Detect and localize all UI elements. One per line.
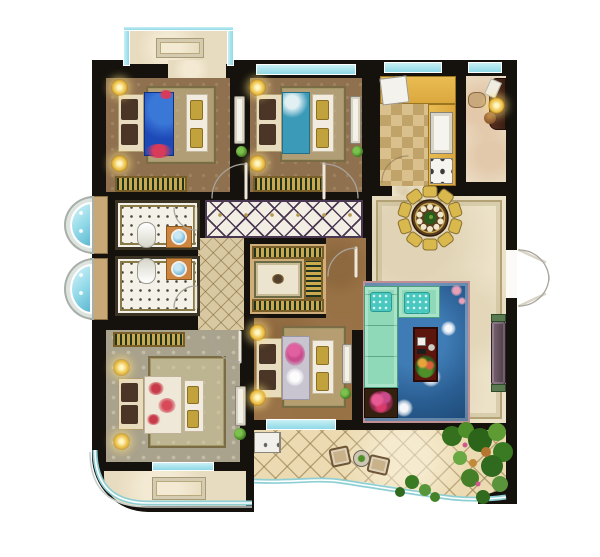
- bed4-bench-cushion: [316, 346, 329, 365]
- tv-console-cap: [491, 384, 506, 392]
- sink-basin: [171, 261, 187, 277]
- wall-lamp: [249, 389, 266, 406]
- rug-flower: [441, 321, 456, 336]
- bedroom4-dresser: [342, 344, 352, 384]
- washing-machine: [254, 432, 281, 453]
- bedroom4-window: [266, 419, 336, 430]
- bedroom2-window: [256, 64, 356, 75]
- fridge: [379, 75, 409, 105]
- bed3-pillow: [121, 383, 138, 402]
- toilet: [137, 222, 156, 248]
- bed2-bench-cushion: [316, 128, 329, 148]
- balcony-top-mat: [156, 38, 204, 58]
- entry-door-arc: [519, 276, 549, 306]
- bedroom3-wardrobe: [113, 332, 185, 347]
- bed1-flowers: [146, 144, 172, 158]
- balcony3-window: [152, 462, 214, 471]
- bed1-pillow: [121, 124, 138, 145]
- tv-console: [491, 321, 506, 385]
- entry-door-arc: [519, 250, 549, 280]
- plant: [352, 146, 363, 157]
- terrace-chair: [328, 445, 352, 468]
- bed2-duvet-teal: [282, 92, 310, 154]
- bed2-pillow: [259, 124, 276, 145]
- coffee-table-cup: [428, 344, 435, 351]
- kitchen-floor: [380, 104, 428, 186]
- bed2-pillow: [259, 99, 276, 120]
- bedroom2-dresser: [350, 96, 361, 144]
- planter-flowers: [368, 391, 394, 413]
- sofa-cushion: [370, 292, 392, 312]
- bed1-pillow: [121, 99, 138, 120]
- bed3-pillow: [121, 405, 138, 424]
- coffee-table-remote: [417, 349, 426, 354]
- wall-lamp: [249, 155, 266, 172]
- toilet: [137, 258, 156, 284]
- bed3-flowers: [148, 382, 164, 395]
- bed3-bench-cushion: [187, 410, 199, 428]
- plant: [234, 428, 246, 440]
- balcony-door-threshold: [168, 60, 226, 79]
- balcony-top-glass-right: [227, 30, 234, 66]
- wall-lamp: [111, 155, 128, 172]
- bed4-flowers: [285, 342, 305, 366]
- bed4-bench-cushion: [316, 372, 329, 391]
- wall-lamp: [113, 433, 130, 450]
- study-window: [468, 62, 502, 73]
- desk-lamp: [488, 97, 505, 114]
- entry-door-leaf: [519, 294, 545, 306]
- rug-flower-pink: [451, 285, 462, 296]
- plant: [340, 388, 351, 399]
- balcony-top-glass-rail: [123, 26, 234, 31]
- bed2-bench-cushion: [316, 100, 329, 120]
- rug-flower-pink: [458, 297, 466, 305]
- coffee-table-photo: [417, 337, 426, 346]
- balcony-bottom-mat: [152, 477, 206, 500]
- wall-lamp: [249, 79, 266, 96]
- kitchen-threshold: [392, 186, 426, 196]
- stove: [430, 158, 453, 184]
- closet-wardrobe-top: [252, 246, 324, 259]
- bed3-flowers: [146, 414, 161, 425]
- tv-console-cap: [491, 314, 506, 322]
- closet-wardrobe-bottom: [252, 299, 324, 312]
- bedroom1-wardrobe: [115, 176, 187, 192]
- wall-lamp: [111, 79, 128, 96]
- balcony-top-glass-left: [123, 30, 130, 66]
- bed4-flowers-white: [286, 368, 304, 386]
- table-bouquet: [415, 355, 436, 378]
- bedroom2-wardrobe: [253, 176, 323, 192]
- study-chair: [468, 92, 486, 108]
- entry-door-gap: [506, 250, 517, 298]
- entry-door-leaf: [519, 250, 545, 262]
- plant: [236, 146, 247, 157]
- terrace-tea-table: [353, 450, 370, 467]
- bed1-bench-cushion: [190, 128, 203, 148]
- closet-rug-medallion: [272, 274, 284, 284]
- wall-lamp: [113, 359, 130, 376]
- kitchen-sink: [430, 112, 453, 154]
- bed3-flowers: [158, 398, 176, 413]
- sink-basin: [171, 229, 187, 245]
- hallway-floor: [198, 238, 244, 330]
- sofa-cushion: [404, 292, 430, 314]
- corridor-floor: [205, 200, 363, 238]
- bed4-pillow: [259, 344, 276, 364]
- bed4-pillow: [259, 370, 276, 390]
- wall-lamp: [249, 324, 266, 341]
- closet-wardrobe-right: [304, 259, 323, 299]
- bed1-flowers: [158, 90, 174, 99]
- bed3-bench-cushion: [187, 386, 199, 404]
- bedroom3-dresser: [235, 386, 246, 426]
- wall-terrace-right: [506, 433, 517, 493]
- kitchen-window: [384, 62, 442, 73]
- bed1-bench-cushion: [190, 100, 203, 120]
- floor-plan-canvas: [0, 0, 600, 557]
- bedroom1-dresser: [234, 96, 245, 144]
- inner-hallway-floor: [326, 238, 366, 330]
